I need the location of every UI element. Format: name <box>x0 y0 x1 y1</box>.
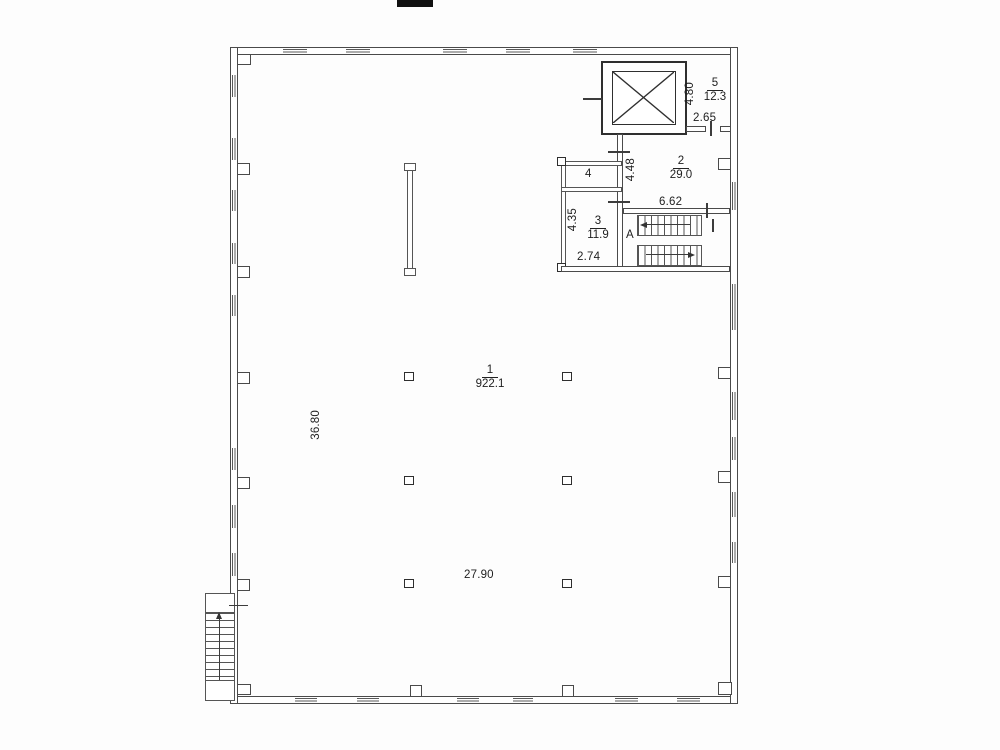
column <box>562 579 572 588</box>
hall-area: 922.1 <box>468 378 512 391</box>
dim-room2-depth: 4.48 <box>625 158 637 181</box>
pilaster <box>237 477 250 489</box>
window <box>506 49 530 54</box>
stair-arrow-left-icon <box>640 222 647 228</box>
pilaster <box>237 266 250 278</box>
dim-hall-width: 27.90 <box>464 569 494 581</box>
window <box>232 243 237 264</box>
room4-top-wall <box>561 161 622 166</box>
room3-label: 3 11.9 <box>580 215 616 242</box>
external-stair-arrow-up-icon <box>216 612 222 619</box>
elevator-shaft <box>601 61 687 135</box>
pilaster <box>237 372 250 384</box>
column <box>404 372 414 381</box>
stair-direction-line <box>646 224 690 225</box>
room2-area: 29.0 <box>661 169 701 182</box>
stair-arrow-right-icon <box>688 252 695 258</box>
window <box>346 49 370 54</box>
column <box>404 476 414 485</box>
window <box>232 75 237 97</box>
pilaster <box>237 54 251 65</box>
window <box>457 698 479 703</box>
window <box>732 492 737 517</box>
elevator-car <box>612 71 676 125</box>
room2-number: 2 <box>673 155 689 169</box>
dim-hall-depth: 36.80 <box>310 410 322 440</box>
window <box>573 49 597 54</box>
section-mark <box>712 219 714 232</box>
floor-plan-canvas: 5 12.3 4.80 2.65 2 29.0 6.62 4.48 4 3 11… <box>0 0 1000 750</box>
window <box>232 448 237 470</box>
column <box>404 579 414 588</box>
room34-divider-wall <box>561 187 622 192</box>
door-tick <box>608 201 630 203</box>
window <box>732 284 737 330</box>
window <box>357 698 379 703</box>
room5-number: 5 <box>707 77 723 91</box>
window <box>283 49 307 54</box>
pilaster <box>718 576 731 588</box>
window <box>232 190 237 211</box>
external-stair-center-line <box>219 614 220 680</box>
beam-shaft <box>407 170 413 269</box>
column <box>562 372 572 381</box>
door-tick <box>706 203 708 218</box>
door-tick <box>608 151 630 153</box>
pilaster <box>237 684 251 695</box>
pilaster <box>410 685 422 697</box>
room2-label: 2 29.0 <box>661 155 701 182</box>
window <box>732 437 737 460</box>
dim-room3-width: 2.74 <box>577 251 600 263</box>
window <box>732 542 737 563</box>
pilaster <box>718 367 731 379</box>
column-post <box>557 157 566 166</box>
pilaster <box>237 163 250 175</box>
room3-number: 3 <box>590 215 606 229</box>
window <box>232 138 237 160</box>
hall-label: 1 922.1 <box>468 364 512 391</box>
room5-label: 5 12.3 <box>697 77 733 104</box>
window <box>295 698 317 703</box>
dim-room3-depth: 4.35 <box>567 208 579 231</box>
pilaster <box>718 471 731 483</box>
room5-wall <box>720 126 731 132</box>
dimension-tick <box>583 98 602 100</box>
stairwell-label: A <box>626 229 634 241</box>
dim-room5-depth: 4.80 <box>684 82 696 105</box>
window <box>232 295 237 316</box>
column <box>562 476 572 485</box>
window <box>513 698 533 703</box>
pilaster <box>718 158 731 170</box>
room34-left-wall <box>561 161 566 272</box>
stair-direction-line <box>646 254 690 255</box>
window <box>677 698 700 703</box>
window <box>443 49 467 54</box>
room5-area: 12.3 <box>697 91 733 104</box>
elevator-x-icon <box>613 72 674 123</box>
door-tick <box>229 605 248 606</box>
dim-room5-width: 2.65 <box>693 112 716 124</box>
room4-number: 4 <box>585 168 592 180</box>
window <box>232 553 237 576</box>
window <box>732 392 737 420</box>
wall-right <box>730 47 738 704</box>
room5-wall <box>686 126 706 132</box>
pilaster <box>237 579 250 591</box>
window <box>732 182 737 210</box>
dim-room2-width: 6.62 <box>659 196 682 208</box>
pilaster <box>718 682 732 695</box>
hall-number: 1 <box>482 364 498 378</box>
window <box>232 505 237 528</box>
scan-artifact <box>397 0 433 7</box>
room3-area: 11.9 <box>580 229 616 242</box>
beam-cap <box>404 268 416 276</box>
pilaster <box>562 685 574 697</box>
window <box>615 698 638 703</box>
stair-bottom-wall <box>561 266 730 272</box>
